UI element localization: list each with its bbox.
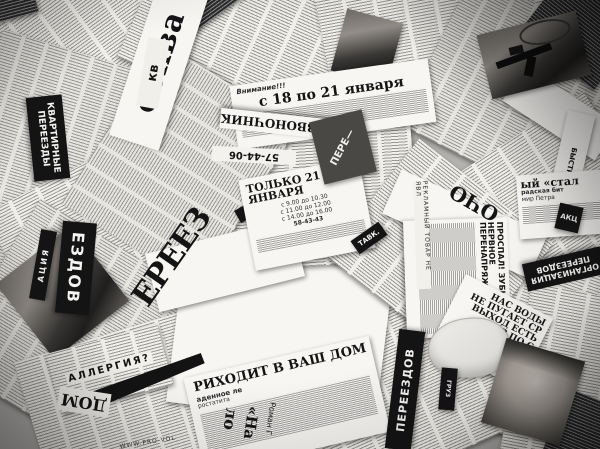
na-quote-vertical-text: «На (241, 405, 260, 440)
newspaper-collage: осква кв Внимание!!! с 18 по 21 января П… (0, 0, 600, 449)
pereezdov-vertical-text: ПЕРЕЕЗДОВ (393, 347, 416, 432)
reklamny-text: РЕКЛАМНЫЙ ТОВАР НЕ ЯВЛ (413, 181, 431, 289)
ezdov-text: ЕЗДОВ (63, 231, 88, 305)
lo-vertical-text: ло (221, 407, 240, 431)
kv-text: кв (145, 63, 161, 82)
dom-text: ДОМ (60, 391, 108, 414)
reklamny-disclaimer: РЕКЛАМНЫЙ ТОВАР НЕ ЯВЛ (413, 181, 431, 289)
pere-dark-text: ПЕРЕ— (329, 127, 357, 167)
aciya-text: АЦИЯ (36, 247, 51, 283)
pereez-big-text: ЕРЕЕЗ (127, 203, 216, 312)
phone-text: 57-44-06 (229, 149, 280, 162)
gruz-text: ГРУЗ (444, 380, 452, 398)
gun-silhouette-barrel (495, 43, 552, 69)
akc-text: АКЦ (559, 212, 578, 224)
